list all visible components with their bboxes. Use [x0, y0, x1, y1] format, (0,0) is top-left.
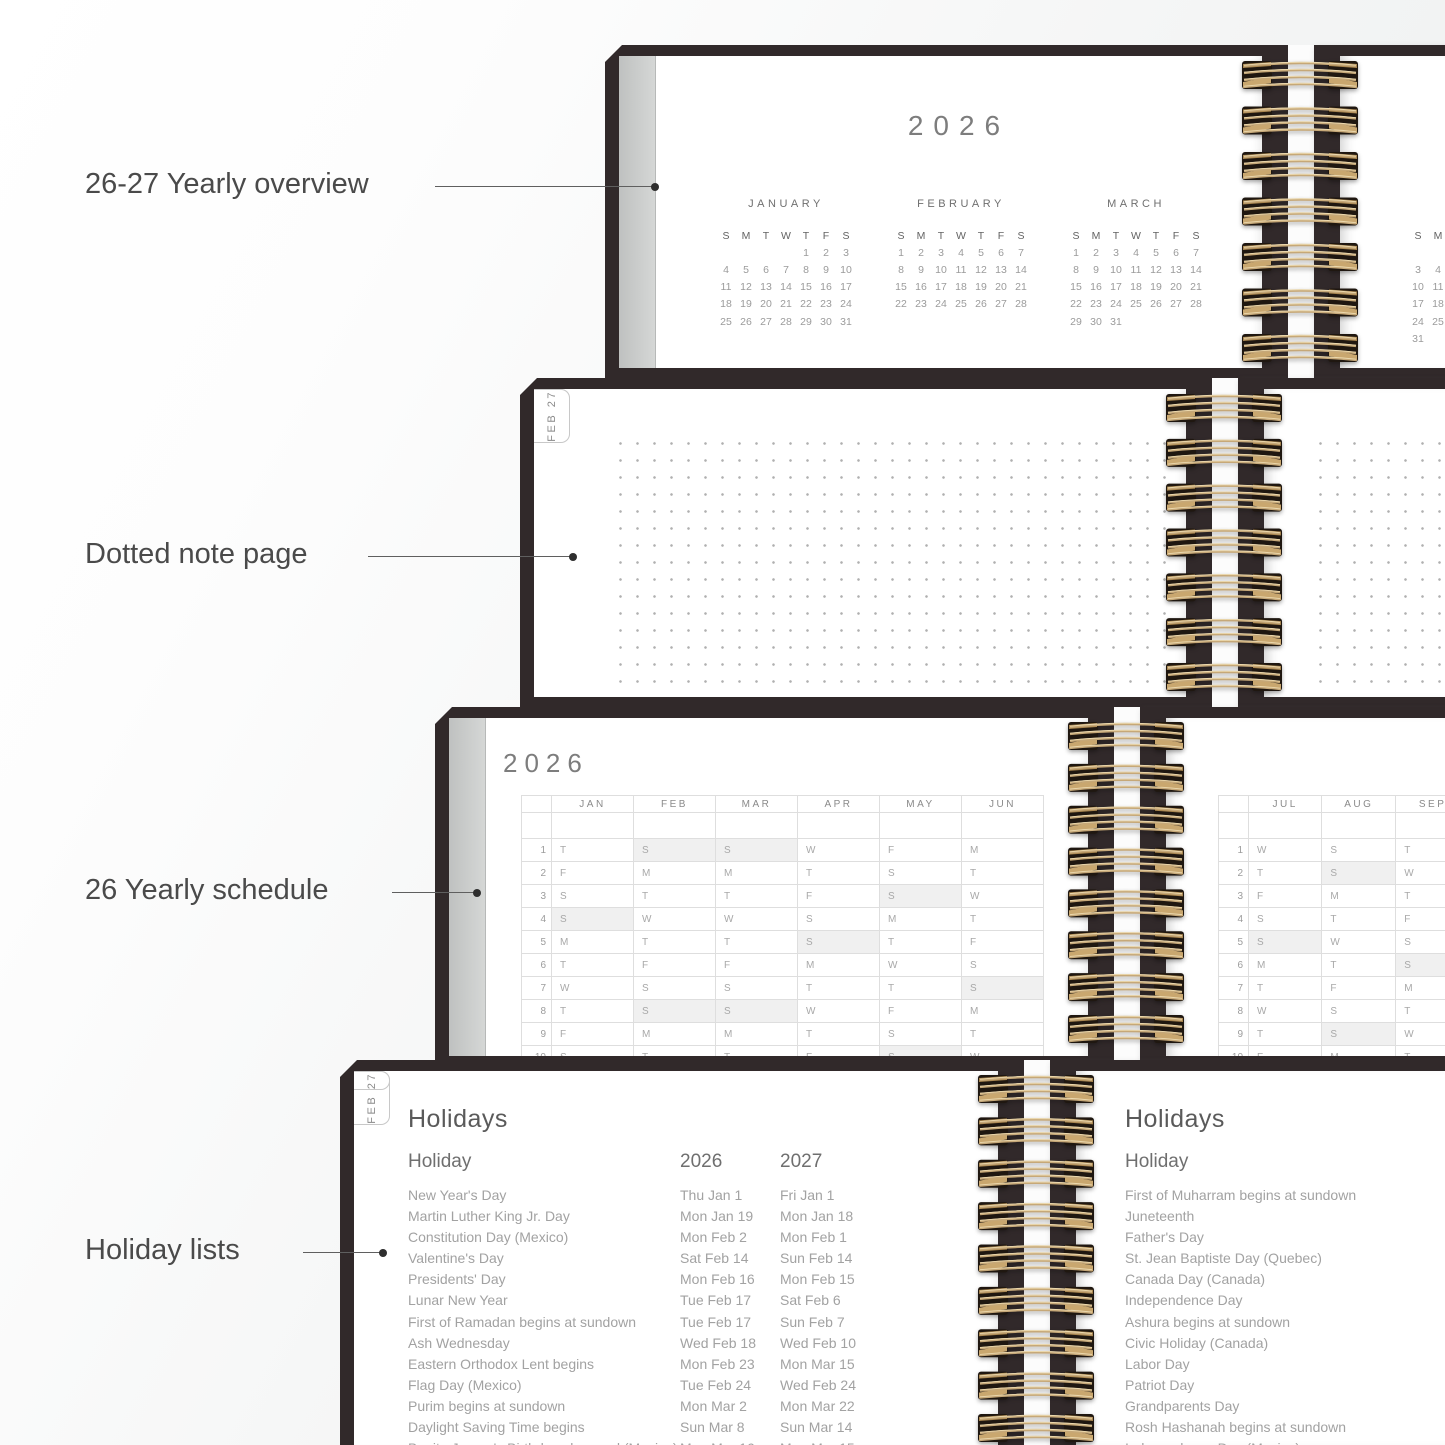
weekday-cell: S — [880, 885, 962, 908]
day-number: 8 — [1219, 1000, 1249, 1023]
date-cell: 7 — [776, 264, 796, 276]
date-cell: 6 — [1166, 247, 1186, 259]
weekday-cell: T — [634, 931, 716, 954]
date-cell: 19 — [971, 281, 991, 293]
weekday-cell: T — [1249, 862, 1322, 885]
holiday-row: Martin Luther King Jr. DayMon Jan 19Mon … — [408, 1206, 998, 1227]
spiral-binding-coil — [1166, 391, 1282, 694]
holiday-column-header: Holiday — [1125, 1151, 1397, 1173]
date-cell: 31 — [1408, 333, 1428, 345]
page-edge-strip — [619, 56, 656, 368]
weekday-cell: S — [1396, 931, 1445, 954]
holiday-name: Lunar New Year — [408, 1290, 680, 1311]
weekday-cell: F — [716, 954, 798, 977]
month-header: APR — [798, 796, 880, 813]
date-2027: Mon Mar 15 — [780, 1438, 998, 1445]
month-header: JUN — [962, 796, 1044, 813]
month-header: FEB — [634, 796, 716, 813]
holiday-row: Rosh Hashanah begins at sundown — [1125, 1417, 1445, 1438]
date-cell: 26 — [971, 298, 991, 310]
schedule-row: 7WSSTTS — [522, 977, 1044, 1000]
weekday-cell: M — [1396, 977, 1445, 1000]
day-header-cell: F — [816, 230, 836, 242]
month-grid: SMTWTFS123456789101112131415161718192021… — [716, 227, 856, 330]
date-cell: 12 — [1146, 264, 1166, 276]
day-number: 8 — [522, 1000, 552, 1023]
partial-calendar-fragment: SM3410111718242531 — [1408, 227, 1445, 347]
weekday-cell: T — [1322, 954, 1396, 977]
date-cell: 10 — [1106, 264, 1126, 276]
holiday-row: Canada Day (Canada) — [1125, 1269, 1445, 1290]
date-cell: 24 — [836, 298, 856, 310]
schedule-header-row: JULAUGSEP — [1219, 796, 1445, 813]
callout-yearly-schedule: 26 Yearly schedule — [85, 874, 328, 907]
holiday-row: Valentine's DaySat Feb 14Sun Feb 14 — [408, 1248, 998, 1269]
day-number: 9 — [522, 1023, 552, 1046]
date-cell: 1 — [796, 247, 816, 259]
date-2027: Mon Mar 22 — [780, 1396, 998, 1417]
schedule-row: 9FMMTST — [522, 1023, 1044, 1046]
date-cell: 17 — [1106, 281, 1126, 293]
schedule-right-page: JULAUGSEP1WST2TSW3FMT4STF5SWS6MTS7TFM8WS… — [1166, 718, 1445, 1056]
weekday-cell: S — [552, 885, 634, 908]
holiday-name: Presidents' Day — [408, 1269, 680, 1290]
date-cell: 20 — [1166, 281, 1186, 293]
weekday-cell: W — [716, 908, 798, 931]
holiday-row: Ash WednesdayWed Feb 18Wed Feb 10 — [408, 1333, 998, 1354]
day-header-cell: S — [1186, 230, 1206, 242]
holiday-row: First of Ramadan begins at sundownTue Fe… — [408, 1312, 998, 1333]
schedule-row: 2FMMTST — [522, 862, 1044, 885]
date-cell: 11 — [1428, 281, 1445, 293]
schedule-row: 5MTTSTF — [522, 931, 1044, 954]
side-tab: FEB 27 — [534, 389, 570, 443]
date-cell: 13 — [1166, 264, 1186, 276]
weekday-cell: S — [1249, 908, 1322, 931]
weekday-cell: F — [880, 1000, 962, 1023]
weekday-cell: T — [962, 908, 1044, 931]
date-cell: 17 — [1408, 298, 1428, 310]
day-number: 7 — [522, 977, 552, 1000]
side-tab: 27 — [354, 1071, 390, 1090]
weekday-cell: M — [634, 1023, 716, 1046]
date-cell: 11 — [716, 281, 736, 293]
date-2026: Mon Feb 2 — [680, 1227, 780, 1248]
day-header-cell: T — [1106, 230, 1126, 242]
date-2027: Mon Feb 1 — [780, 1227, 998, 1248]
weekday-cell: T — [552, 1000, 634, 1023]
date-cell: 25 — [1428, 316, 1445, 328]
mini-calendar: JANUARYSMTWTFS12345678910111213141516171… — [716, 198, 856, 330]
date-2027: Wed Feb 24 — [780, 1375, 998, 1396]
year-2026-column-header: 2026 — [680, 1151, 780, 1173]
weekday-cell: W — [1322, 931, 1396, 954]
date-cell: 9 — [816, 264, 836, 276]
day-number: 2 — [522, 862, 552, 885]
spacer-row — [1219, 813, 1445, 839]
weekday-cell: F — [1249, 1046, 1322, 1057]
schedule-year-title: 2026 — [503, 748, 589, 779]
holidays-title: Holidays — [408, 1105, 508, 1134]
date-2026: Sat Feb 14 — [680, 1248, 780, 1269]
weekday-cell: T — [962, 1023, 1044, 1046]
date-2026: Mon Mar 2 — [680, 1396, 780, 1417]
weekday-cell: T — [880, 977, 962, 1000]
date-cell: 9 — [911, 264, 931, 276]
date-cell: 23 — [1086, 298, 1106, 310]
weekday-cell: M — [1322, 1046, 1396, 1057]
date-cell: 11 — [951, 264, 971, 276]
holiday-name: Constitution Day (Mexico) — [408, 1227, 680, 1248]
day-header-cell: S — [1408, 230, 1428, 242]
weekday-cell: M — [1322, 885, 1396, 908]
weekday-cell: S — [634, 1000, 716, 1023]
weekday-cell: T — [716, 931, 798, 954]
date-2027: Sun Feb 7 — [780, 1312, 998, 1333]
date-cell: 5 — [736, 264, 756, 276]
schedule-right-cover-frame: JULAUGSEP1WST2TSW3FMT4STF5SWS6MTS7TFM8WS… — [1140, 707, 1445, 1060]
holiday-name: Valentine's Day — [408, 1248, 680, 1269]
holiday-row: Patriot Day — [1125, 1375, 1445, 1396]
day-number: 2 — [1219, 862, 1249, 885]
weekday-cell: T — [1396, 839, 1445, 862]
holiday-row: Civic Holiday (Canada) — [1125, 1333, 1445, 1354]
overview-page-cover-frame: 2026 JANUARYSMTWTFS123456789101112131415… — [605, 45, 1288, 378]
date-cell: 1 — [891, 247, 911, 259]
day-header-cell: M — [1428, 230, 1445, 242]
day-header-cell: S — [1011, 230, 1031, 242]
weekday-cell: S — [880, 1046, 962, 1057]
date-cell: 10 — [1408, 281, 1428, 293]
schedule-row: 4STF — [1219, 908, 1445, 931]
holiday-column-header: Holiday — [408, 1151, 680, 1173]
holiday-row: Benito Juarez's Birthday observed (Mexic… — [408, 1438, 998, 1445]
weekday-cell: S — [552, 1046, 634, 1057]
date-cell: 26 — [736, 316, 756, 328]
month-header: MAY — [880, 796, 962, 813]
date-cell: 23 — [816, 298, 836, 310]
date-cell: 2 — [911, 247, 931, 259]
holiday-row: Labor Day — [1125, 1354, 1445, 1375]
holiday-row: Daylight Saving Time beginsSun Mar 8Sun … — [408, 1417, 998, 1438]
schedule-page-content: 2026 JANFEBMARAPRMAYJUN1TSSWFM2FMMTST3ST… — [486, 718, 1088, 1056]
schedule-page-cover-frame: 2026 JANFEBMARAPRMAYJUN1TSSWFM2FMMTST3ST… — [435, 707, 1114, 1060]
weekday-cell: T — [880, 931, 962, 954]
date-2026: Mon Mar 16 — [680, 1438, 780, 1445]
schedule-row: 3FMT — [1219, 885, 1445, 908]
schedule-row: 3STTFSW — [522, 885, 1044, 908]
month-grid: SMTWTFS123456789101112131415161718192021… — [1066, 227, 1206, 330]
day-number: 5 — [522, 931, 552, 954]
weekday-cell: T — [634, 1046, 716, 1057]
holiday-row: Lunar New YearTue Feb 17Sat Feb 6 — [408, 1290, 998, 1311]
overview-year-title: 2026 — [656, 110, 1262, 142]
date-cell: 7 — [1186, 247, 1206, 259]
holiday-name: Benito Juarez's Birthday observed (Mexic… — [408, 1438, 680, 1445]
holiday-name: Martin Luther King Jr. Day — [408, 1206, 680, 1227]
holiday-row: Juneteenth — [1125, 1206, 1445, 1227]
holidays-column-headers: Holiday 2026 2027 — [408, 1151, 998, 1173]
date-cell: 6 — [756, 264, 776, 276]
schedule-row: 9TSW — [1219, 1023, 1445, 1046]
holiday-row: Presidents' DayMon Feb 16Mon Feb 15 — [408, 1269, 998, 1290]
holiday-name: Purim begins at sundown — [408, 1396, 680, 1417]
date-cell: 4 — [1126, 247, 1146, 259]
day-header-cell: T — [971, 230, 991, 242]
date-2027: Sun Mar 14 — [780, 1417, 998, 1438]
date-2026: Mon Jan 19 — [680, 1206, 780, 1227]
day-header-cell: T — [931, 230, 951, 242]
weekday-cell: M — [634, 862, 716, 885]
date-cell: 9 — [1086, 264, 1106, 276]
date-2026: Thu Jan 1 — [680, 1185, 780, 1206]
weekday-cell: F — [798, 1046, 880, 1057]
weekday-cell: W — [880, 954, 962, 977]
date-cell: 16 — [816, 281, 836, 293]
holiday-row: Eastern Orthodox Lent beginsMon Feb 23Mo… — [408, 1354, 998, 1375]
date-cell: 19 — [1146, 281, 1166, 293]
date-cell: 2 — [1086, 247, 1106, 259]
date-2026: Sun Mar 8 — [680, 1417, 780, 1438]
date-cell: 19 — [736, 298, 756, 310]
weekday-cell: T — [798, 977, 880, 1000]
day-number: 3 — [522, 885, 552, 908]
weekday-cell: T — [1322, 908, 1396, 931]
schedule-row: 2TSW — [1219, 862, 1445, 885]
weekday-cell: S — [634, 977, 716, 1000]
weekday-cell: S — [716, 839, 798, 862]
month-header: AUG — [1322, 796, 1396, 813]
holiday-row: Father's Day — [1125, 1227, 1445, 1248]
yearly-schedule-table-right: JULAUGSEP1WST2TSW3FMT4STF5SWS6MTS7TFM8WS… — [1218, 795, 1445, 1056]
date-cell: 13 — [756, 281, 776, 293]
date-cell: 14 — [776, 281, 796, 293]
weekday-cell: F — [962, 931, 1044, 954]
holiday-row: First of Muharram begins at sundown — [1125, 1185, 1445, 1206]
date-cell: 22 — [1066, 298, 1086, 310]
date-cell: 3 — [1408, 264, 1428, 276]
schedule-row: 8WST — [1219, 1000, 1445, 1023]
weekday-cell: T — [798, 862, 880, 885]
weekday-cell: S — [1322, 862, 1396, 885]
weekday-cell: S — [798, 908, 880, 931]
date-2027: Wed Feb 10 — [780, 1333, 998, 1354]
weekday-cell: T — [798, 1023, 880, 1046]
date-cell: 14 — [1186, 264, 1206, 276]
day-header-cell: T — [1146, 230, 1166, 242]
weekday-cell: W — [798, 1000, 880, 1023]
date-cell: 25 — [1126, 298, 1146, 310]
month-title: FEBRUARY — [891, 198, 1031, 210]
weekday-cell: S — [880, 1023, 962, 1046]
date-cell: 31 — [836, 316, 856, 328]
weekday-cell: S — [716, 977, 798, 1000]
date-2027: Mon Jan 18 — [780, 1206, 998, 1227]
callout-leader-line — [435, 186, 655, 187]
weekday-cell: M — [1249, 954, 1322, 977]
schedule-row: 10STTFSW — [522, 1046, 1044, 1057]
day-number: 9 — [1219, 1023, 1249, 1046]
day-header-cell: W — [776, 230, 796, 242]
holidays-right-page: Holidays Holiday First of Muharram begin… — [1076, 1071, 1445, 1445]
holiday-row: Ashura begins at sundown — [1125, 1312, 1445, 1333]
weekday-cell: S — [798, 931, 880, 954]
weekday-cell: W — [634, 908, 716, 931]
holiday-row: Flag Day (Mexico)Tue Feb 24Wed Feb 24 — [408, 1375, 998, 1396]
side-tab-label: 27 — [366, 1072, 378, 1089]
day-number: 6 — [1219, 954, 1249, 977]
weekday-cell: T — [1249, 1023, 1322, 1046]
weekday-cell: S — [1322, 1023, 1396, 1046]
month-header: JUL — [1249, 796, 1322, 813]
date-cell: 20 — [756, 298, 776, 310]
month-header: MAR — [716, 796, 798, 813]
date-2026: Wed Feb 18 — [680, 1333, 780, 1354]
date-cell: 8 — [891, 264, 911, 276]
day-header-cell: S — [716, 230, 736, 242]
schedule-row: 6MTS — [1219, 954, 1445, 977]
day-number: 6 — [522, 954, 552, 977]
date-cell: 8 — [796, 264, 816, 276]
date-cell: 17 — [931, 281, 951, 293]
weekday-cell: W — [962, 885, 1044, 908]
schedule-header-row: JANFEBMARAPRMAYJUN — [522, 796, 1044, 813]
date-cell: 28 — [1011, 298, 1031, 310]
day-number: 1 — [522, 839, 552, 862]
holidays-right-cover-frame: Holidays Holiday First of Muharram begin… — [1050, 1060, 1445, 1445]
date-cell: 18 — [951, 281, 971, 293]
weekday-cell: W — [1396, 1023, 1445, 1046]
weekday-cell: F — [1322, 977, 1396, 1000]
month-header: SEP — [1396, 796, 1445, 813]
callout-leader-line — [368, 556, 573, 557]
day-header-cell: F — [1166, 230, 1186, 242]
date-cell: 10 — [836, 264, 856, 276]
callout-holiday-lists: Holiday lists — [85, 1234, 240, 1267]
weekday-cell: S — [880, 862, 962, 885]
date-cell: 14 — [1011, 264, 1031, 276]
weekday-cell: F — [552, 862, 634, 885]
weekday-cell: S — [1322, 839, 1396, 862]
month-grid: SMTWTFS123456789101112131415161718192021… — [891, 227, 1031, 313]
weekday-cell: F — [1396, 908, 1445, 931]
weekday-cell: W — [1396, 862, 1445, 885]
holidays-title: Holidays — [1125, 1105, 1225, 1134]
date-cell: 21 — [1186, 281, 1206, 293]
weekday-cell: T — [552, 839, 634, 862]
day-header-cell: M — [736, 230, 756, 242]
weekday-cell: W — [798, 839, 880, 862]
spiral-binding-coil — [978, 1072, 1094, 1445]
date-cell: 5 — [971, 247, 991, 259]
date-cell: 18 — [1126, 281, 1146, 293]
date-cell: 27 — [991, 298, 1011, 310]
date-2026: Tue Feb 17 — [680, 1312, 780, 1333]
weekday-cell: M — [716, 1023, 798, 1046]
weekday-cell: F — [552, 1023, 634, 1046]
overview-page: 2026 JANUARYSMTWTFS123456789101112131415… — [619, 56, 1262, 368]
day-number: 4 — [522, 908, 552, 931]
spacer-row — [522, 813, 1044, 839]
callout-yearly-overview: 26-27 Yearly overview — [85, 168, 369, 201]
side-tab-label: FEB 27 — [546, 390, 558, 442]
day-header-cell: W — [951, 230, 971, 242]
weekday-cell: T — [552, 954, 634, 977]
weekday-cell: M — [962, 1000, 1044, 1023]
dot-grid — [612, 435, 1180, 692]
date-cell: 30 — [816, 316, 836, 328]
date-cell: 25 — [951, 298, 971, 310]
weekday-cell: W — [1249, 1000, 1322, 1023]
schedule-row: 10FMT — [1219, 1046, 1445, 1057]
date-2026: Tue Feb 24 — [680, 1375, 780, 1396]
holiday-row: Independence Day — [1125, 1290, 1445, 1311]
date-cell: 3 — [836, 247, 856, 259]
note-page-cover-frame: JAN 27FEB 27 — [520, 378, 1212, 707]
holiday-name: Ash Wednesday — [408, 1333, 680, 1354]
date-2026: Mon Feb 16 — [680, 1269, 780, 1290]
holiday-row: Constitution Day (Mexico)Mon Feb 2Mon Fe… — [408, 1227, 998, 1248]
date-cell: 16 — [911, 281, 931, 293]
weekday-cell: F — [1249, 885, 1322, 908]
date-cell: 26 — [1146, 298, 1166, 310]
day-header-cell: T — [796, 230, 816, 242]
day-header-cell: S — [836, 230, 856, 242]
day-header-cell: M — [1086, 230, 1106, 242]
weekday-cell: S — [962, 977, 1044, 1000]
date-cell: 24 — [931, 298, 951, 310]
holiday-list: New Year's DayThu Jan 1Fri Jan 1Martin L… — [408, 1185, 998, 1445]
date-cell: 29 — [796, 316, 816, 328]
date-cell: 3 — [931, 247, 951, 259]
date-2027: Fri Jan 1 — [780, 1185, 998, 1206]
day-header-cell: S — [1066, 230, 1086, 242]
holidays-column-headers: Holiday — [1125, 1151, 1445, 1173]
day-number: 10 — [522, 1046, 552, 1057]
date-cell: 13 — [991, 264, 1011, 276]
weekday-cell: W — [1249, 839, 1322, 862]
date-cell: 24 — [1106, 298, 1126, 310]
day-number: 1 — [1219, 839, 1249, 862]
date-cell: 31 — [1106, 316, 1126, 328]
date-2027: Sun Feb 14 — [780, 1248, 998, 1269]
day-number: 10 — [1219, 1046, 1249, 1057]
schedule-row: 5SWS — [1219, 931, 1445, 954]
note-right-page — [1264, 389, 1445, 697]
date-cell: 10 — [931, 264, 951, 276]
holiday-name: First of Ramadan begins at sundown — [408, 1312, 680, 1333]
dot-grid — [1312, 435, 1445, 692]
schedule-row: 8TSSWFM — [522, 1000, 1044, 1023]
date-2027: Sat Feb 6 — [780, 1290, 998, 1311]
date-cell: 27 — [1166, 298, 1186, 310]
holiday-list-right: First of Muharram begins at sundownJunet… — [1125, 1185, 1445, 1445]
date-cell: 12 — [971, 264, 991, 276]
page-edge-strip — [449, 718, 486, 1056]
holiday-name: Daylight Saving Time begins — [408, 1417, 680, 1438]
holidays-page-content: Holidays Holiday 2026 2027 New Year's Da… — [354, 1071, 998, 1445]
day-number: 3 — [1219, 885, 1249, 908]
weekday-cell: M — [880, 908, 962, 931]
month-title: JANUARY — [716, 198, 856, 210]
weekday-cell: M — [798, 954, 880, 977]
spiral-binding-coil — [1068, 719, 1184, 1046]
weekday-cell: T — [1396, 1046, 1445, 1057]
date-cell: 25 — [716, 316, 736, 328]
day-number: 4 — [1219, 908, 1249, 931]
day-header-cell: W — [1126, 230, 1146, 242]
date-cell: 28 — [776, 316, 796, 328]
